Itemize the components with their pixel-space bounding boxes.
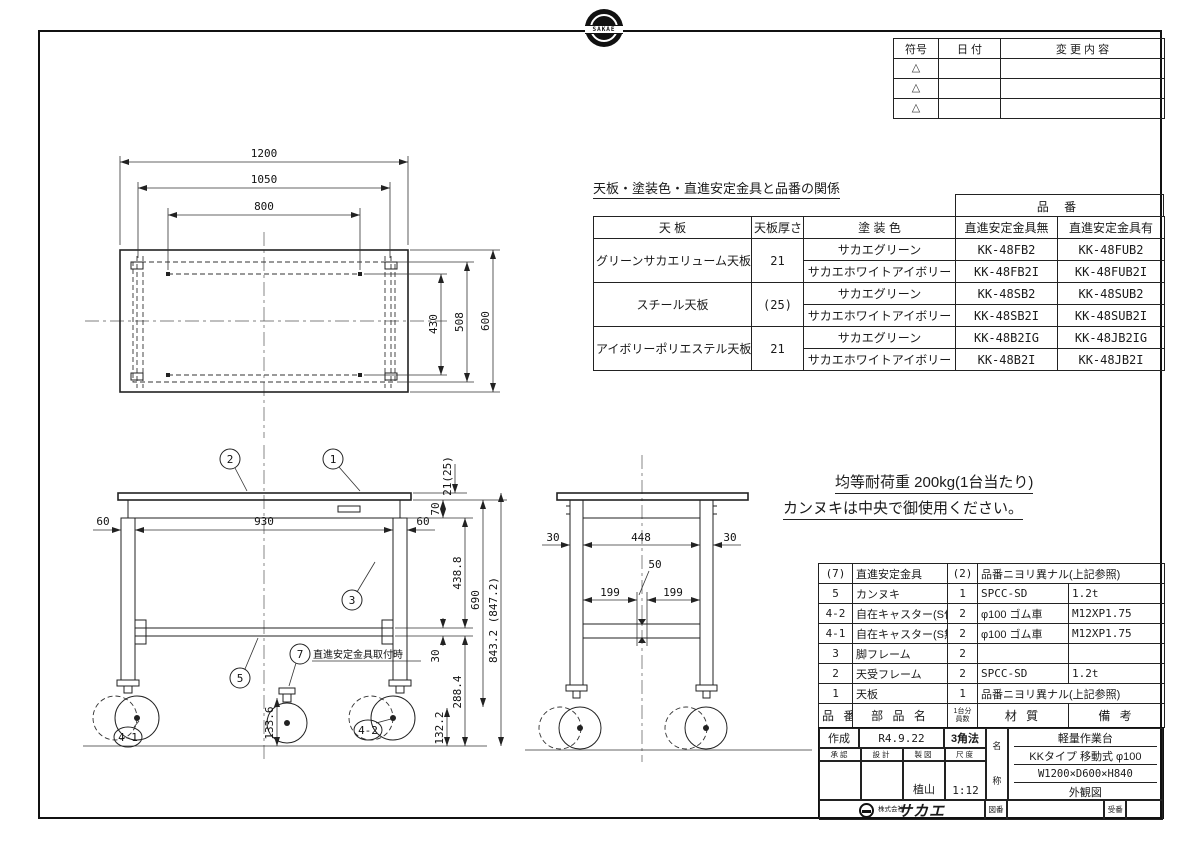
svg-text:288.4: 288.4 [451, 675, 464, 708]
part-remarks-cell: M12XP1.75 [1069, 624, 1165, 644]
revision-change-header: 変 更 内 容 [1001, 39, 1165, 59]
approval-cell [819, 761, 861, 800]
part-no-cell: 2 [819, 664, 853, 684]
parts-row: 5 カンヌキ 1 SPCC-SD 1.2t [819, 584, 1165, 604]
svg-text:800: 800 [254, 200, 274, 213]
part-remarks-cell [1069, 644, 1165, 664]
product-header-row: 天 板 天板厚さ 塗 装 色 直進安定金具無 直進安定金具有 [594, 217, 1165, 239]
paint-color-cell: サカエグリーン [804, 327, 956, 349]
revision-change-cell [1001, 99, 1165, 119]
part-remarks-cell: 1.2t [1069, 664, 1165, 684]
revision-date-cell [939, 59, 1001, 79]
dim-30-448-30: 30 448 30 [542, 531, 741, 545]
svg-text:1200: 1200 [251, 147, 278, 160]
side-workbench-outline [557, 493, 748, 698]
company-prefix: 株式会社 [878, 807, 893, 814]
svg-text:1: 1 [330, 453, 337, 466]
part-no-with-cell: KK-48SUB2I [1058, 305, 1165, 327]
stabilizer-note: 直進安定金具取付時 [313, 648, 403, 661]
revision-date-header: 日 付 [939, 39, 1001, 59]
title-block: 作成 R4.9.22 3角法 承認 設計 製図 尺度 植山 1:12 [818, 727, 1164, 819]
part-no-with-cell: KK-48SUB2 [1058, 283, 1165, 305]
part-qty-cell: 1 [948, 684, 978, 704]
with-stabilizer-header: 直進安定金具有 [1058, 217, 1165, 239]
name-label-column: 名 称 [986, 728, 1008, 800]
page-no-label: 受番 [1104, 800, 1126, 820]
part-material-cell [978, 644, 1069, 664]
parts-list-table: (7) 直進安定金具 (2) 品番ニヨリ異ナル(上記参照) 5 カンヌキ 1 S… [818, 563, 1165, 728]
balloon-2: 2 [220, 449, 247, 491]
part-no-without-cell: KK-48FB2 [956, 239, 1058, 261]
part-name-cell: 自在キャスター(S付) [853, 604, 948, 624]
front-view-drawing: 60 930 60 21(25) 70 438.8 30 690 843.2 (… [55, 430, 515, 780]
svg-text:508: 508 [453, 312, 466, 332]
revision-triangle-icon: △ [894, 99, 939, 119]
revision-row: △ [894, 59, 1165, 79]
top-view-drawing: 1200 1050 800 600 508 430 [55, 140, 510, 440]
top-board-cell: アイボリーポリエステル天板 [594, 327, 752, 371]
svg-text:30: 30 [429, 649, 442, 662]
svg-text:60: 60 [96, 515, 109, 528]
svg-text:438.8: 438.8 [451, 556, 464, 589]
part-no-without-cell: KK-48SB2I [956, 305, 1058, 327]
parts-header-row: 品 番 部 品 名 1台分 員数 材 質 備 考 [819, 704, 1165, 728]
revision-date-cell [939, 79, 1001, 99]
projection-method: 3角法 [944, 728, 986, 748]
svg-text:60: 60 [416, 515, 429, 528]
product-name-line: 軽量作業台 [1014, 729, 1157, 747]
paint-color-cell: サカエホワイトアイボリー [804, 349, 956, 371]
sakae-logo-icon [859, 803, 874, 818]
paint-color-header: 塗 装 色 [804, 217, 956, 239]
part-material-cell: φ100 ゴム車 [978, 604, 1069, 624]
part-name-cell: 天板 [853, 684, 948, 704]
thickness-header: 天板厚さ [752, 217, 804, 239]
side-caster-right [665, 707, 727, 749]
product-size-line: W1200×D600×H840 [1014, 765, 1157, 783]
svg-text:4-1: 4-1 [118, 731, 138, 744]
name-label-bottom: 称 [992, 776, 1001, 786]
product-type-line: KKタイプ 移動式 φ100 [1014, 747, 1157, 765]
part-no-without-cell: KK-48FB2I [956, 261, 1058, 283]
product-row: スチール天板 (25) サカエグリーン KK-48SB2 KK-48SUB2 [594, 283, 1165, 305]
revision-table: 符号 日 付 変 更 内 容 △ △ △ [893, 38, 1165, 119]
part-no-cell: 3 [819, 644, 853, 664]
part-name-cell: 自在キャスター(S無) [853, 624, 948, 644]
balloon-1: 1 [323, 449, 360, 491]
drafter-name: 植山 [903, 761, 945, 800]
parts-row: 1 天板 1 品番ニヨリ異ナル(上記参照) [819, 684, 1165, 704]
part-qty-cell: 2 [948, 664, 978, 684]
dim-1200: 1200 [120, 147, 408, 245]
svg-text:1050: 1050 [251, 173, 278, 186]
balloon-3: 3 [342, 562, 375, 610]
paint-color-cell: サカエホワイトアイボリー [804, 261, 956, 283]
svg-text:4-2: 4-2 [358, 724, 378, 737]
company-name: サカエ [897, 800, 945, 820]
svg-text:132.2: 132.2 [433, 711, 446, 744]
svg-text:133.6: 133.6 [263, 706, 276, 739]
part-material-cell: SPCC-SD [978, 584, 1069, 604]
thickness-cell: 21 [752, 239, 804, 283]
svg-text:448: 448 [631, 531, 651, 544]
part-number-band-header: 品 番 [955, 194, 1164, 217]
parts-material-header: 材 質 [978, 704, 1069, 728]
design-label: 設計 [861, 748, 903, 761]
drawing-sheet: SAKAE 符号 日 付 変 更 内 容 △ △ △ [0, 0, 1200, 849]
top-board-cell: スチール天板 [594, 283, 752, 327]
approval-label: 承認 [819, 748, 861, 761]
balloon-5: 5 [230, 638, 258, 688]
balloon-4-2: 4-2 [354, 719, 391, 740]
parts-no-header: 品 番 [819, 704, 853, 728]
top-board-header: 天 板 [594, 217, 752, 239]
revision-triangle-icon: △ [894, 79, 939, 99]
revision-row: △ [894, 99, 1165, 119]
revision-change-cell [1001, 79, 1165, 99]
paint-color-cell: サカエホワイトアイボリー [804, 305, 956, 327]
dim-50-gap: 50 [639, 558, 662, 595]
part-no-with-cell: KK-48JB2I [1058, 349, 1165, 371]
svg-text:5: 5 [237, 672, 244, 685]
svg-text:30: 30 [723, 531, 736, 544]
part-name-cell: 天受フレーム [853, 664, 948, 684]
part-no-cell: 1 [819, 684, 853, 704]
side-caster-left [539, 707, 601, 749]
created-date: R4.9.22 [859, 728, 944, 748]
product-row: グリーンサカエリューム天板 21 サカエグリーン KK-48FB2 KK-48F… [594, 239, 1165, 261]
svg-text:843.2 (847.2): 843.2 (847.2) [487, 577, 500, 663]
top-view-centerlines [85, 232, 447, 438]
name-label-top: 名 [992, 741, 1001, 751]
part-material-cell: φ100 ゴム車 [978, 624, 1069, 644]
svg-text:600: 600 [479, 311, 492, 331]
top-board-cell: グリーンサカエリューム天板 [594, 239, 752, 283]
part-no-without-cell: KK-48SB2 [956, 283, 1058, 305]
scale-value: 1:12 [945, 761, 986, 800]
paint-color-cell: サカエグリーン [804, 283, 956, 305]
parts-qty-header: 1台分 員数 [948, 704, 978, 728]
thickness-cell: 21 [752, 327, 804, 371]
qty-header-line1: 1台分 [951, 708, 974, 716]
svg-text:690: 690 [469, 590, 482, 610]
balloon-4-1: 4-1 [114, 721, 142, 747]
revision-row: △ [894, 79, 1165, 99]
svg-text:21(25): 21(25) [441, 456, 454, 496]
page-no-cell [1126, 800, 1163, 820]
scale-label: 尺度 [945, 748, 986, 761]
svg-text:199: 199 [663, 586, 683, 599]
part-no-cell: (7) [819, 564, 853, 584]
parts-row: 2 天受フレーム 2 SPCC-SD 1.2t [819, 664, 1165, 684]
parts-name-header: 部 品 名 [853, 704, 948, 728]
part-material-cell: SPCC-SD [978, 664, 1069, 684]
parts-row: 4-2 自在キャスター(S付) 2 φ100 ゴム車 M12XP1.75 [819, 604, 1165, 624]
svg-text:2: 2 [227, 453, 234, 466]
part-name-cell: 直進安定金具 [853, 564, 948, 584]
svg-text:7: 7 [297, 648, 304, 661]
dim-430: 430 [364, 274, 447, 375]
paint-color-cell: サカエグリーン [804, 239, 956, 261]
svg-text:70: 70 [429, 502, 442, 515]
part-name-cell: カンヌキ [853, 584, 948, 604]
part-remarks-cell: M12XP1.75 [1069, 604, 1165, 624]
part-material-cell: 品番ニヨリ異ナル(上記参照) [978, 684, 1165, 704]
sakae-round-stamp-icon: SAKAE [585, 9, 623, 47]
drawing-no-cell [1007, 800, 1104, 820]
part-no-cell: 5 [819, 584, 853, 604]
part-qty-cell: (2) [948, 564, 978, 584]
svg-text:430: 430 [427, 314, 440, 334]
svg-text:3: 3 [349, 594, 356, 607]
part-no-cell: 4-1 [819, 624, 853, 644]
svg-text:199: 199 [600, 586, 620, 599]
revision-header-row: 符号 日 付 変 更 内 容 [894, 39, 1165, 59]
part-no-without-cell: KK-48B2IG [956, 327, 1058, 349]
part-no-without-cell: KK-48B2I [956, 349, 1058, 371]
part-no-with-cell: KK-48FUB2I [1058, 261, 1165, 283]
svg-text:50: 50 [648, 558, 661, 571]
revision-change-cell [1001, 59, 1165, 79]
drawing-kind-line: 外観図 [1014, 783, 1157, 801]
part-qty-cell: 2 [948, 624, 978, 644]
parts-row: 3 脚フレーム 2 [819, 644, 1165, 664]
side-view-drawing: 30 448 30 50 199 199 [520, 430, 820, 780]
part-no-with-cell: KK-48FUB2 [1058, 239, 1165, 261]
parts-remarks-header: 備 考 [1069, 704, 1165, 728]
part-qty-cell: 1 [948, 584, 978, 604]
revision-date-cell [939, 99, 1001, 119]
drafting-label: 製図 [903, 748, 945, 761]
parts-row: (7) 直進安定金具 (2) 品番ニヨリ異ナル(上記参照) [819, 564, 1165, 584]
created-label: 作成 [819, 728, 859, 748]
company-logo: 株式会社 サカエ [819, 800, 985, 820]
thickness-cell: (25) [752, 283, 804, 327]
part-name-cell: 脚フレーム [853, 644, 948, 664]
without-stabilizer-header: 直進安定金具無 [956, 217, 1058, 239]
part-material-cell: 品番ニヨリ異ナル(上記参照) [978, 564, 1165, 584]
product-row: アイボリーポリエステル天板 21 サカエグリーン KK-48B2IG KK-48… [594, 327, 1165, 349]
drawing-no-label: 図番 [985, 800, 1007, 820]
svg-text:30: 30 [546, 531, 559, 544]
part-remarks-cell: 1.2t [1069, 584, 1165, 604]
revision-triangle-icon: △ [894, 59, 939, 79]
design-cell [861, 761, 903, 800]
parts-row: 4-1 自在キャスター(S無) 2 φ100 ゴム車 M12XP1.75 [819, 624, 1165, 644]
load-capacity-note: 均等耐荷重 200kg(1台当たり) [835, 471, 1033, 494]
part-qty-cell: 2 [948, 644, 978, 664]
product-table-title: 天板・塗装色・直進安定金具と品番の関係 [593, 178, 840, 199]
svg-text:930: 930 [254, 515, 274, 528]
qty-header-line2: 員数 [951, 716, 974, 724]
part-no-with-cell: KK-48JB2IG [1058, 327, 1165, 349]
dim-60-930-60: 60 930 60 [93, 515, 435, 530]
revision-symbol-header: 符号 [894, 39, 939, 59]
part-no-cell: 4-2 [819, 604, 853, 624]
stamp-ring: SAKAE [590, 14, 618, 42]
part-qty-cell: 2 [948, 604, 978, 624]
stamp-banner-text: SAKAE [585, 25, 623, 34]
